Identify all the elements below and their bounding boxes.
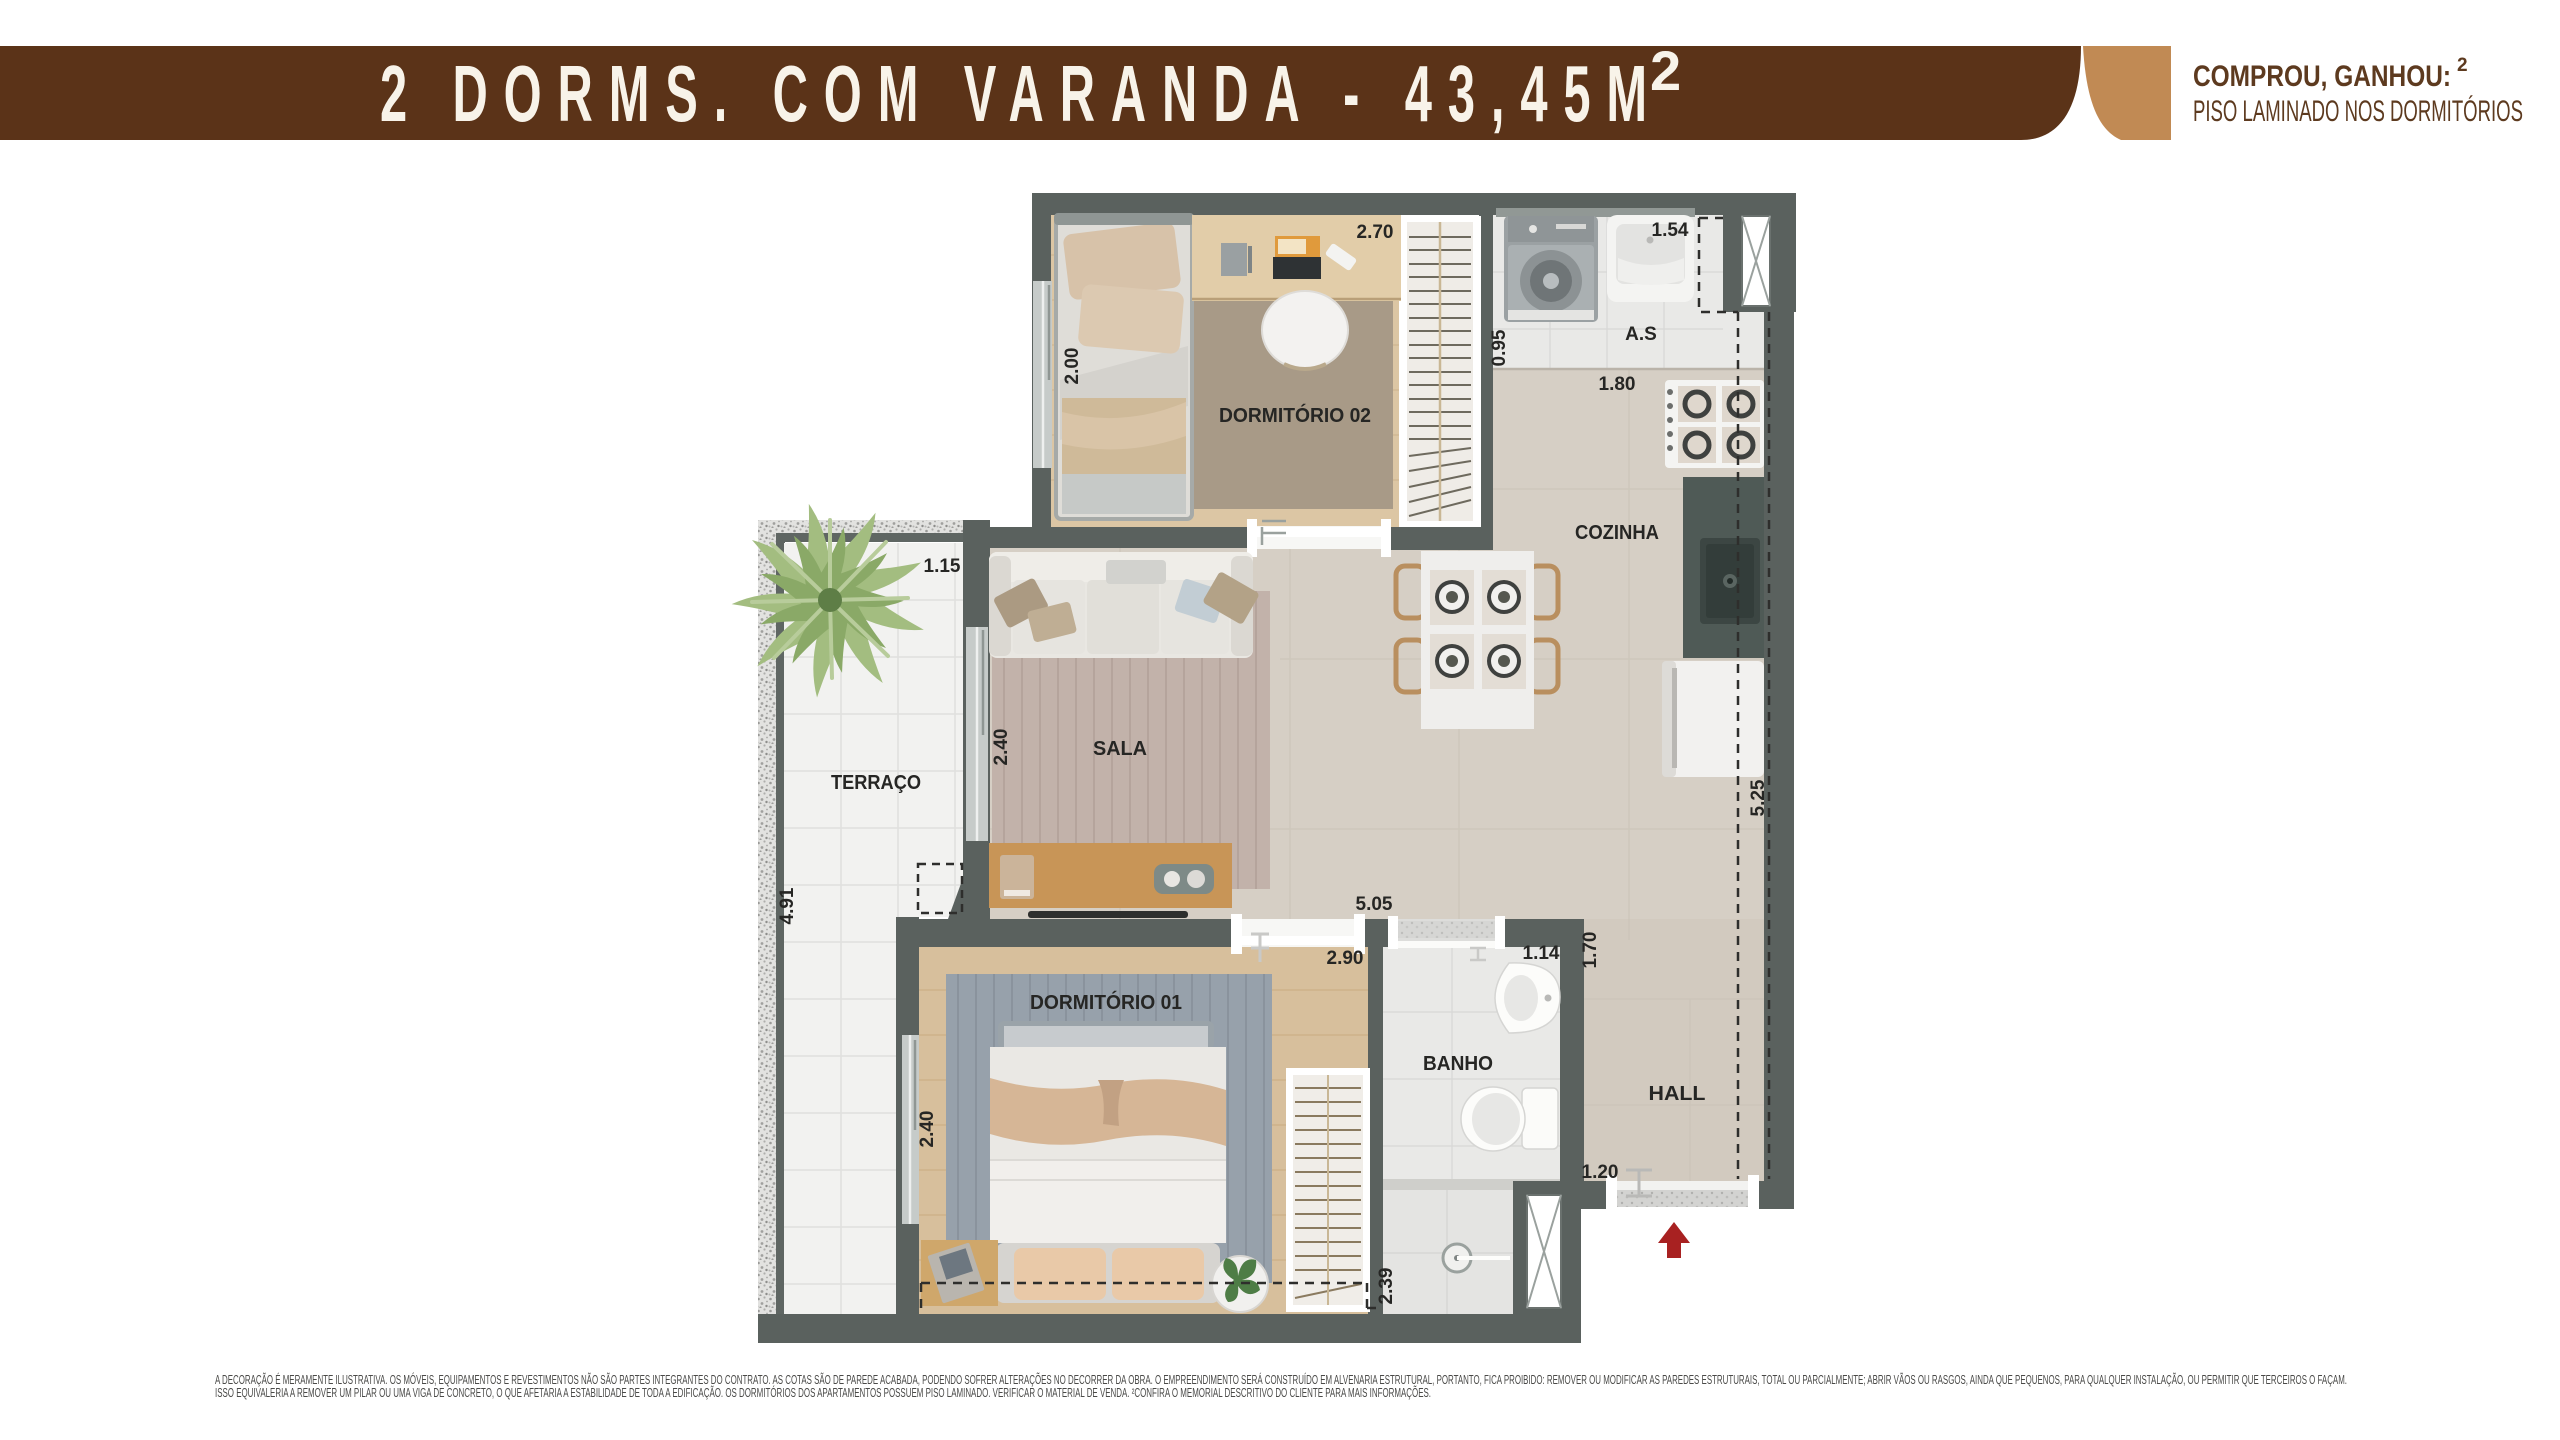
svg-text:COMPROU, GANHOU:: COMPROU, GANHOU: — [2193, 60, 2451, 93]
svg-text:4.91: 4.91 — [777, 887, 798, 924]
svg-text:ISSO EQUIVALERIA A REMOVER UM: ISSO EQUIVALERIA A REMOVER UM PILAR OU U… — [215, 1385, 1431, 1400]
svg-text:1.20: 1.20 — [1582, 1162, 1619, 1183]
svg-text:COZINHA: COZINHA — [1575, 522, 1659, 544]
svg-text:0.95: 0.95 — [1489, 329, 1510, 366]
svg-text:1.54: 1.54 — [1652, 220, 1689, 241]
svg-text:TERRAÇO: TERRAÇO — [831, 772, 921, 794]
svg-text:2.70: 2.70 — [1357, 222, 1394, 243]
svg-text:2.40: 2.40 — [991, 729, 1012, 766]
svg-text:5.05: 5.05 — [1356, 894, 1393, 915]
svg-text:HALL: HALL — [1649, 1083, 1706, 1105]
svg-text:5.25: 5.25 — [1748, 779, 1769, 816]
svg-text:BANHO: BANHO — [1423, 1053, 1493, 1075]
svg-text:2: 2 — [1650, 39, 1681, 102]
svg-text:1.70: 1.70 — [1580, 932, 1601, 969]
svg-text:2.39: 2.39 — [1376, 1268, 1397, 1305]
svg-text:1.80: 1.80 — [1599, 374, 1636, 395]
svg-text:1.15: 1.15 — [924, 556, 961, 577]
svg-text:2.90: 2.90 — [1327, 948, 1364, 969]
svg-text:2.40: 2.40 — [917, 1111, 938, 1148]
svg-text:A.S: A.S — [1625, 324, 1657, 345]
svg-text:PISO LAMINADO NOS DORMITÓRIOS: PISO LAMINADO NOS DORMITÓRIOS — [2193, 95, 2523, 128]
svg-text:SALA: SALA — [1093, 738, 1147, 760]
svg-text:1.14: 1.14 — [1523, 943, 1560, 964]
svg-text:2 DORMS. COM VARANDA - 43,45M: 2 DORMS. COM VARANDA - 43,45M — [380, 49, 1663, 138]
svg-text:A DECORAÇÃO É MERAMENTE ILUSTR: A DECORAÇÃO É MERAMENTE ILUSTRATIVA. OS … — [215, 1372, 2347, 1387]
svg-text:DORMITÓRIO 02: DORMITÓRIO 02 — [1219, 403, 1371, 427]
svg-text:2.00: 2.00 — [1062, 348, 1083, 385]
svg-text:DORMITÓRIO 01: DORMITÓRIO 01 — [1030, 990, 1182, 1014]
svg-text:2: 2 — [2457, 55, 2468, 76]
